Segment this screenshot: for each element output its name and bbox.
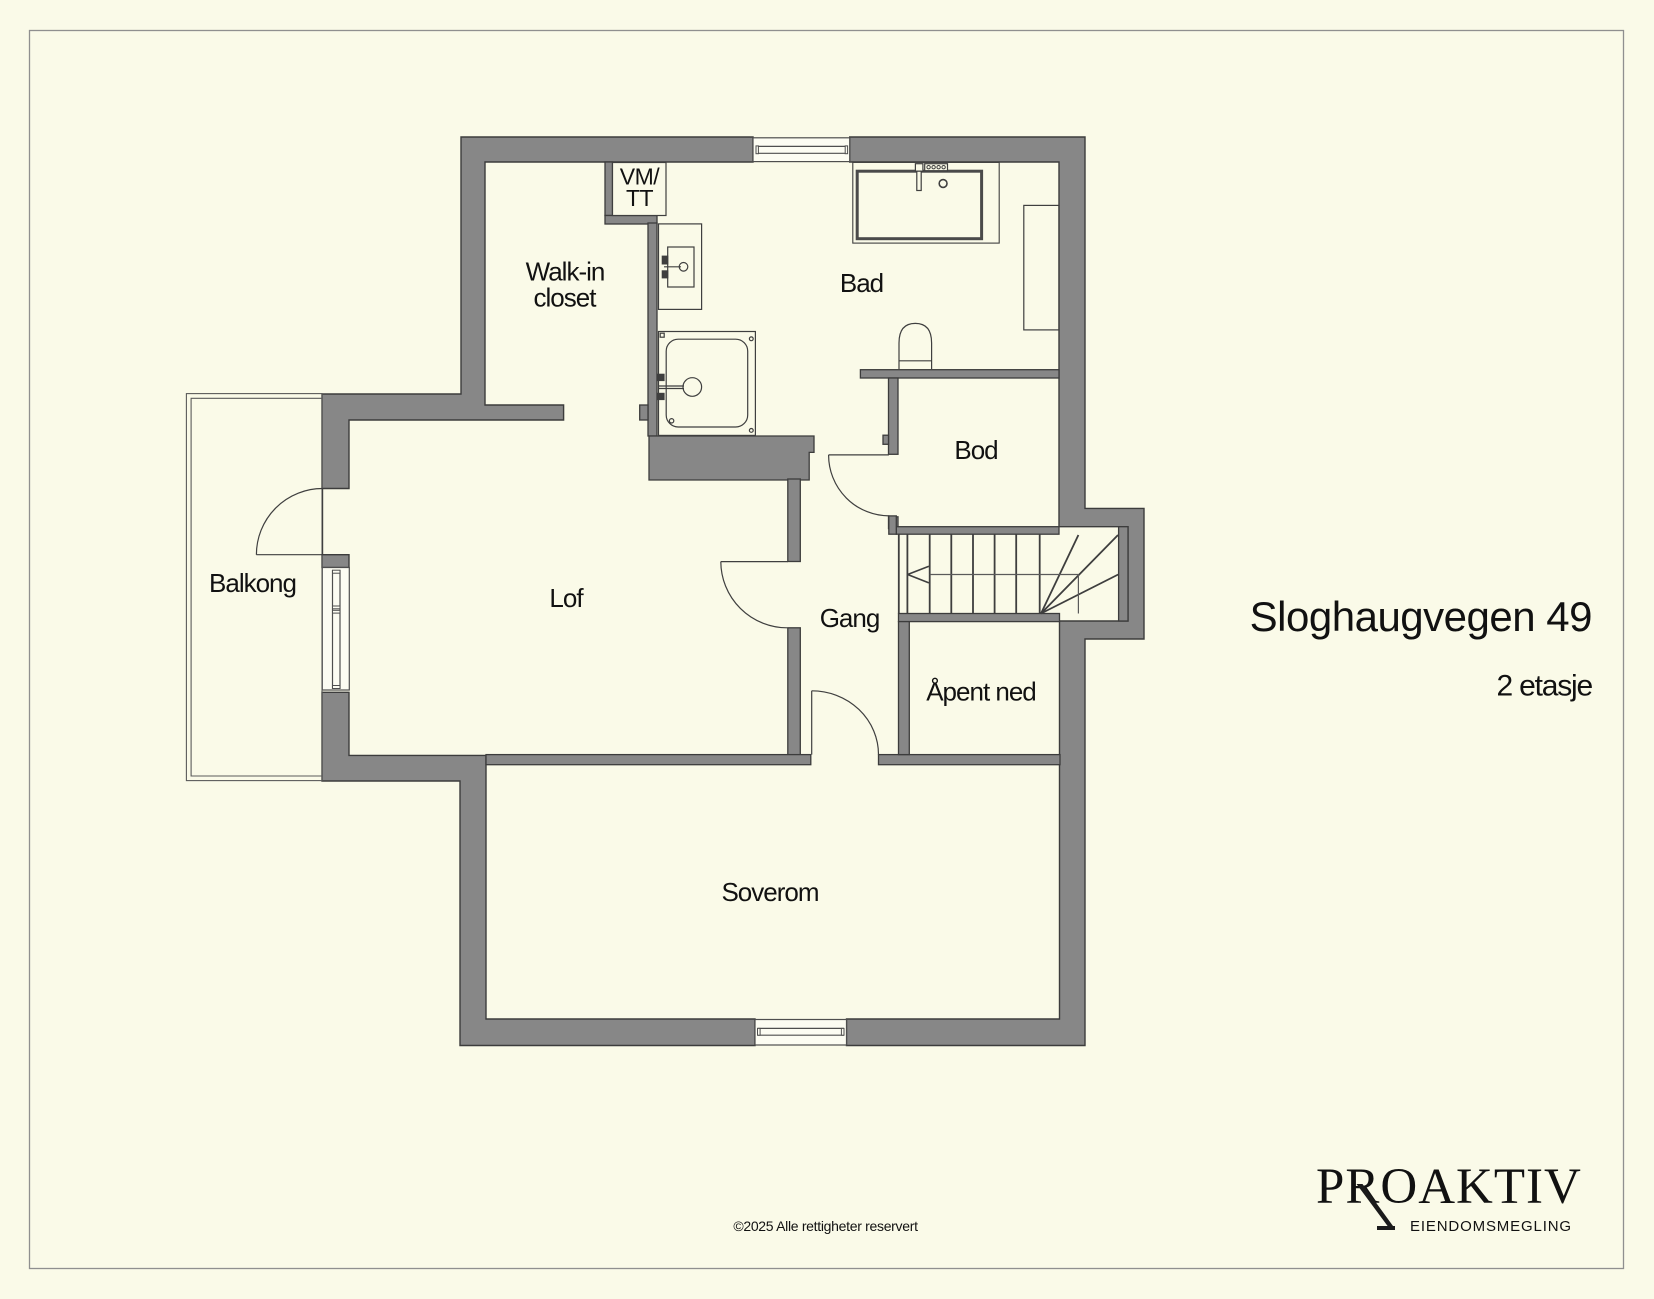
- svg-text:2 etasje: 2 etasje: [1497, 670, 1593, 703]
- svg-text:Gang: Gang: [820, 603, 880, 633]
- svg-text:Balkong: Balkong: [209, 568, 296, 598]
- svg-text:Bad: Bad: [840, 268, 883, 298]
- svg-text:EIENDOMSMEGLING: EIENDOMSMEGLING: [1410, 1218, 1572, 1235]
- svg-text:PROAKTIV: PROAKTIV: [1316, 1159, 1582, 1215]
- svg-text:Lof: Lof: [549, 583, 584, 613]
- svg-text:TT: TT: [626, 185, 654, 211]
- svg-text:Bod: Bod: [954, 435, 997, 465]
- svg-text:©2025 Alle rettigheter reserve: ©2025 Alle rettigheter reservert: [733, 1218, 918, 1234]
- svg-text:Åpent ned: Åpent ned: [926, 677, 1036, 707]
- svg-text:Sloghaugvegen 49: Sloghaugvegen 49: [1250, 593, 1592, 640]
- svg-text:Soverom: Soverom: [721, 877, 818, 907]
- svg-text:closet: closet: [534, 283, 598, 313]
